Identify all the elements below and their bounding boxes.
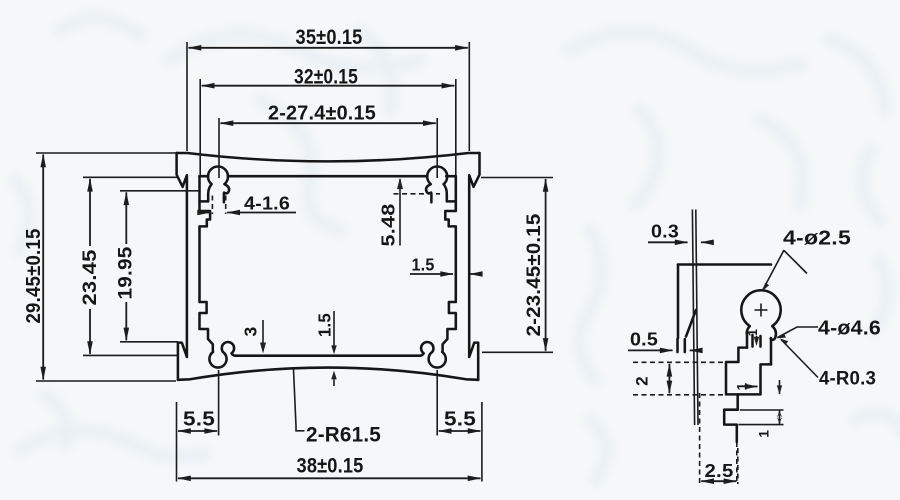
svg-text:23.45: 23.45 bbox=[80, 249, 101, 305]
svg-text:2-27.4±0.15: 2-27.4±0.15 bbox=[268, 103, 376, 125]
svg-text:38±0.15: 38±0.15 bbox=[297, 454, 364, 478]
svg-text:35±0.15: 35±0.15 bbox=[296, 26, 363, 49]
svg-text:2-23.45±0.15: 2-23.45±0.15 bbox=[523, 214, 545, 337]
svg-text:4-ø4.6: 4-ø4.6 bbox=[818, 318, 881, 340]
svg-text:2: 2 bbox=[633, 376, 652, 386]
svg-text:1: 1 bbox=[734, 383, 750, 391]
svg-text:2-R61.5: 2-R61.5 bbox=[306, 424, 381, 447]
svg-text:5.5: 5.5 bbox=[444, 409, 476, 431]
svg-text:5.48: 5.48 bbox=[379, 204, 399, 247]
svg-text:5.5: 5.5 bbox=[183, 409, 215, 431]
svg-text:1: 1 bbox=[745, 329, 760, 336]
svg-text:0.3: 0.3 bbox=[651, 222, 679, 242]
svg-text:2.5: 2.5 bbox=[705, 461, 734, 481]
svg-text:4-1.6: 4-1.6 bbox=[244, 194, 290, 214]
svg-text:4-ø2.5: 4-ø2.5 bbox=[783, 228, 851, 250]
svg-text:1.5: 1.5 bbox=[315, 313, 335, 337]
svg-text:29.45±0.15: 29.45±0.15 bbox=[23, 229, 45, 324]
svg-text:1: 1 bbox=[756, 430, 772, 438]
svg-text:32±0.15: 32±0.15 bbox=[294, 66, 358, 89]
svg-text:19.95: 19.95 bbox=[116, 246, 137, 299]
svg-text:4-R0.3: 4-R0.3 bbox=[819, 368, 876, 390]
svg-text:0.5: 0.5 bbox=[630, 329, 658, 350]
svg-text:1.5: 1.5 bbox=[412, 255, 435, 275]
svg-text:3: 3 bbox=[241, 326, 261, 336]
